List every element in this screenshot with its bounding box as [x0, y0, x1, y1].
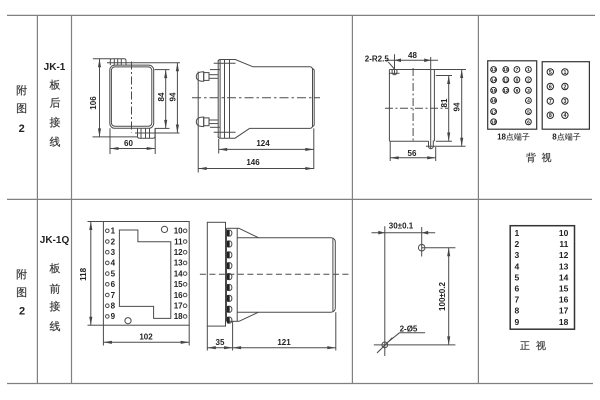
- svg-text:8: 8: [552, 133, 557, 142]
- svg-text:3: 3: [563, 99, 566, 105]
- svg-text:1: 1: [111, 227, 116, 236]
- svg-text:9: 9: [516, 88, 519, 94]
- svg-text:9: 9: [515, 317, 520, 327]
- svg-text:124: 124: [256, 139, 270, 148]
- svg-text:18: 18: [491, 120, 497, 126]
- svg-text:6: 6: [515, 284, 520, 294]
- svg-text:JK-1: JK-1: [44, 62, 66, 73]
- svg-text:7: 7: [516, 67, 519, 73]
- svg-text:35: 35: [216, 338, 225, 347]
- svg-text:11: 11: [559, 239, 568, 249]
- svg-text:18: 18: [174, 312, 183, 321]
- svg-text:106: 106: [89, 96, 98, 110]
- svg-text:1: 1: [527, 67, 530, 73]
- svg-text:3: 3: [515, 250, 520, 260]
- svg-text:1: 1: [515, 228, 520, 238]
- svg-text:14: 14: [174, 269, 183, 278]
- svg-text:15: 15: [559, 284, 569, 294]
- svg-text:2: 2: [111, 237, 116, 246]
- svg-text:2-R2.5: 2-R2.5: [365, 55, 390, 64]
- svg-text:2: 2: [19, 306, 25, 318]
- svg-text:11: 11: [503, 78, 508, 84]
- svg-text:11: 11: [174, 237, 183, 246]
- svg-text:6: 6: [549, 84, 552, 90]
- svg-text:100±0.2: 100±0.2: [438, 282, 447, 311]
- svg-text:13: 13: [174, 259, 183, 268]
- svg-text:2: 2: [19, 123, 25, 135]
- svg-text:JK-1Q: JK-1Q: [40, 235, 70, 246]
- svg-text:8: 8: [515, 306, 520, 316]
- svg-text:5: 5: [515, 272, 520, 282]
- svg-text:94: 94: [169, 92, 178, 101]
- svg-text:56: 56: [408, 149, 417, 158]
- svg-text:16: 16: [174, 291, 183, 300]
- svg-text:2: 2: [527, 78, 530, 84]
- svg-text:4: 4: [563, 113, 566, 119]
- svg-text:3: 3: [111, 248, 116, 257]
- svg-text:1: 1: [563, 70, 566, 76]
- svg-text:94: 94: [453, 102, 462, 111]
- svg-text:12: 12: [503, 88, 509, 94]
- svg-text:10: 10: [503, 67, 509, 73]
- svg-text:5: 5: [549, 70, 552, 76]
- svg-text:6: 6: [111, 280, 116, 289]
- svg-text:8: 8: [111, 302, 116, 311]
- svg-text:16: 16: [559, 295, 569, 305]
- svg-text:4: 4: [527, 98, 530, 104]
- svg-text:146: 146: [246, 158, 260, 167]
- svg-text:6: 6: [527, 120, 530, 126]
- svg-text:17: 17: [491, 109, 497, 115]
- svg-text:8: 8: [516, 78, 519, 84]
- svg-text:5: 5: [527, 109, 530, 115]
- svg-text:7: 7: [515, 295, 520, 305]
- svg-text:8: 8: [549, 113, 552, 119]
- svg-text:14: 14: [559, 272, 569, 282]
- svg-text:81: 81: [440, 98, 449, 107]
- svg-text:84: 84: [157, 92, 166, 101]
- svg-text:60: 60: [124, 139, 133, 148]
- svg-text:18: 18: [497, 133, 506, 142]
- svg-text:30±0.1: 30±0.1: [389, 222, 414, 231]
- svg-text:10: 10: [559, 228, 569, 238]
- svg-text:12: 12: [559, 250, 569, 260]
- svg-text:2: 2: [563, 84, 566, 90]
- svg-text:18: 18: [559, 317, 569, 327]
- svg-text:17: 17: [559, 306, 569, 316]
- svg-text:118: 118: [79, 267, 88, 280]
- svg-text:4: 4: [515, 261, 520, 271]
- svg-text:15: 15: [174, 280, 183, 289]
- svg-text:10: 10: [174, 227, 183, 236]
- svg-text:4: 4: [111, 259, 116, 268]
- svg-text:13: 13: [491, 67, 497, 73]
- svg-text:16: 16: [491, 98, 497, 104]
- svg-text:14: 14: [491, 78, 497, 84]
- svg-text:5: 5: [111, 269, 116, 278]
- svg-text:2: 2: [515, 239, 520, 249]
- svg-text:17: 17: [174, 302, 183, 311]
- svg-text:15: 15: [491, 88, 497, 94]
- svg-text:9: 9: [111, 312, 116, 321]
- svg-text:7: 7: [111, 291, 116, 300]
- svg-text:3: 3: [527, 88, 530, 94]
- svg-text:48: 48: [408, 51, 417, 60]
- svg-text:2-Ø5: 2-Ø5: [400, 324, 418, 333]
- svg-text:12: 12: [174, 248, 183, 257]
- svg-text:121: 121: [277, 338, 291, 347]
- svg-text:7: 7: [549, 99, 552, 105]
- svg-text:102: 102: [139, 333, 153, 342]
- svg-text:13: 13: [559, 261, 569, 271]
